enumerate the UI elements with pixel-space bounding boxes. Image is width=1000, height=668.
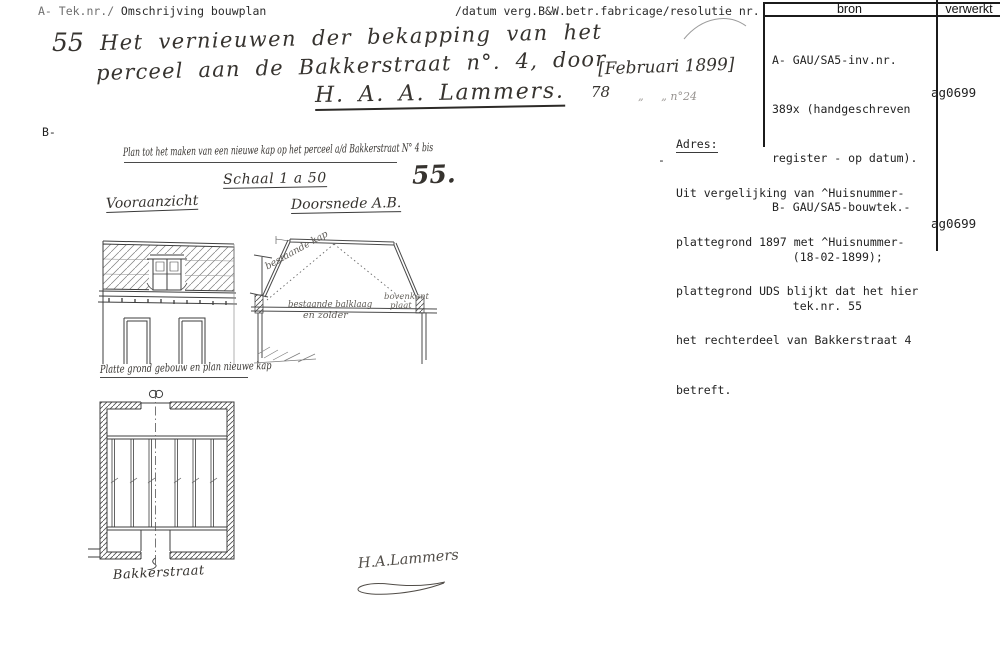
header-left-label: Omschrijving bouwplan [114,3,266,19]
front-elevation-drawing [95,228,240,366]
section-note-zolder: en zolder [303,310,348,321]
entry-date-rest: „ „ n°24 [638,90,697,103]
table-column-separator [936,0,938,251]
header-left-code: A- Tek.nr./ [38,3,114,19]
verwerkt-code-1: ag0699 [931,85,976,101]
section-note-right-2: plaat [390,301,412,311]
adres-text: Uit vergelijking van ^Huisnummer- platte… [676,152,918,431]
section-note-balklaag: bestaande balklaag [288,299,372,310]
adres-line-2: plattegrond 1897 met ^Huisnummer- [676,234,918,250]
table-left-border [763,2,765,147]
entry-number: 55 [52,28,84,57]
front-elevation-label: Vooraanzicht [106,193,199,213]
bron-line-1: A- GAU/SA5-inv.nr. [772,52,917,68]
adres-heading: Adres: [676,136,718,153]
entry-date: [Februari 1899] [598,55,735,80]
verwerkt-column-header: verwerkt [938,2,1000,16]
b-label: B- [42,124,56,140]
scale-label: Schaal 1 a 50 [223,170,327,189]
signature-flourish [352,577,452,601]
drawing-title: Plan tot het maken van een nieuwe kap op… [123,140,433,159]
bron-line-2: 389x (handgeschreven [772,101,917,117]
adres-line-3: plattegrond UDS blijkt dat het hier [676,283,918,299]
plan-label-underline [100,377,248,378]
section-label: Doorsnede A.B. [291,195,402,214]
bron-column-header: bron [763,2,936,16]
stray-pen-mark [682,13,748,41]
adres-line-5: betreft. [676,382,918,398]
adres-line-4: het rechterdeel van Bakkerstraat 4 [676,332,918,348]
verwerkt-code-2: ag0699 [931,216,976,232]
drawing-title-underline [124,162,397,163]
entry-date-day: 78 [591,83,610,101]
sheet-number: 55. [412,159,456,190]
adres-dash: - [658,152,665,168]
floor-plan-drawing [88,386,240,570]
entry-line-3: H. A. A. Lammers. [315,79,565,111]
scanned-document-page: A- Tek.nr./ Omschrijving bouwplan /datum… [0,0,1000,668]
adres-line-1: Uit vergelijking van ^Huisnummer- [676,185,918,201]
plan-label: Platte grond gebouw en plan nieuwe kap [100,359,272,376]
signature: H.A.Lammers [357,547,459,572]
